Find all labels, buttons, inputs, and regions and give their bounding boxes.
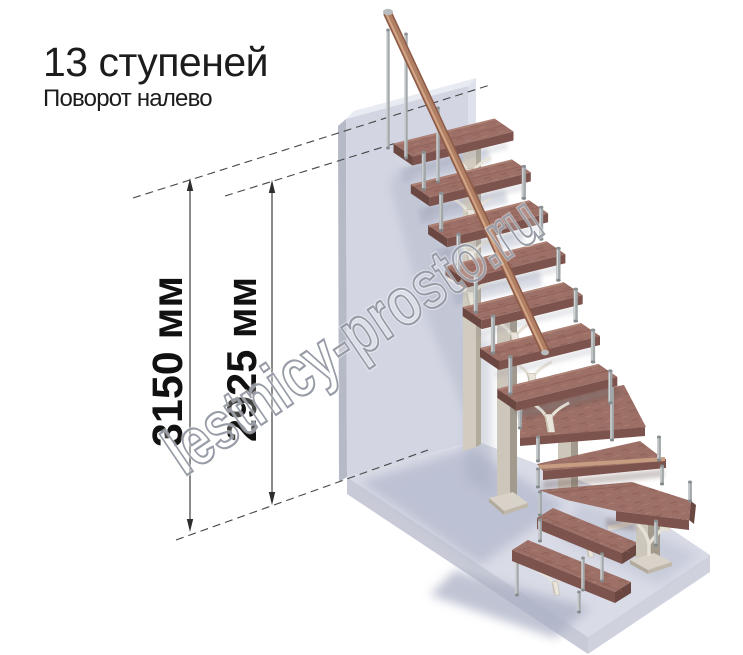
svg-text:Поворот налево: Поворот налево: [43, 85, 212, 112]
svg-text:13 ступеней: 13 ступеней: [43, 39, 268, 85]
